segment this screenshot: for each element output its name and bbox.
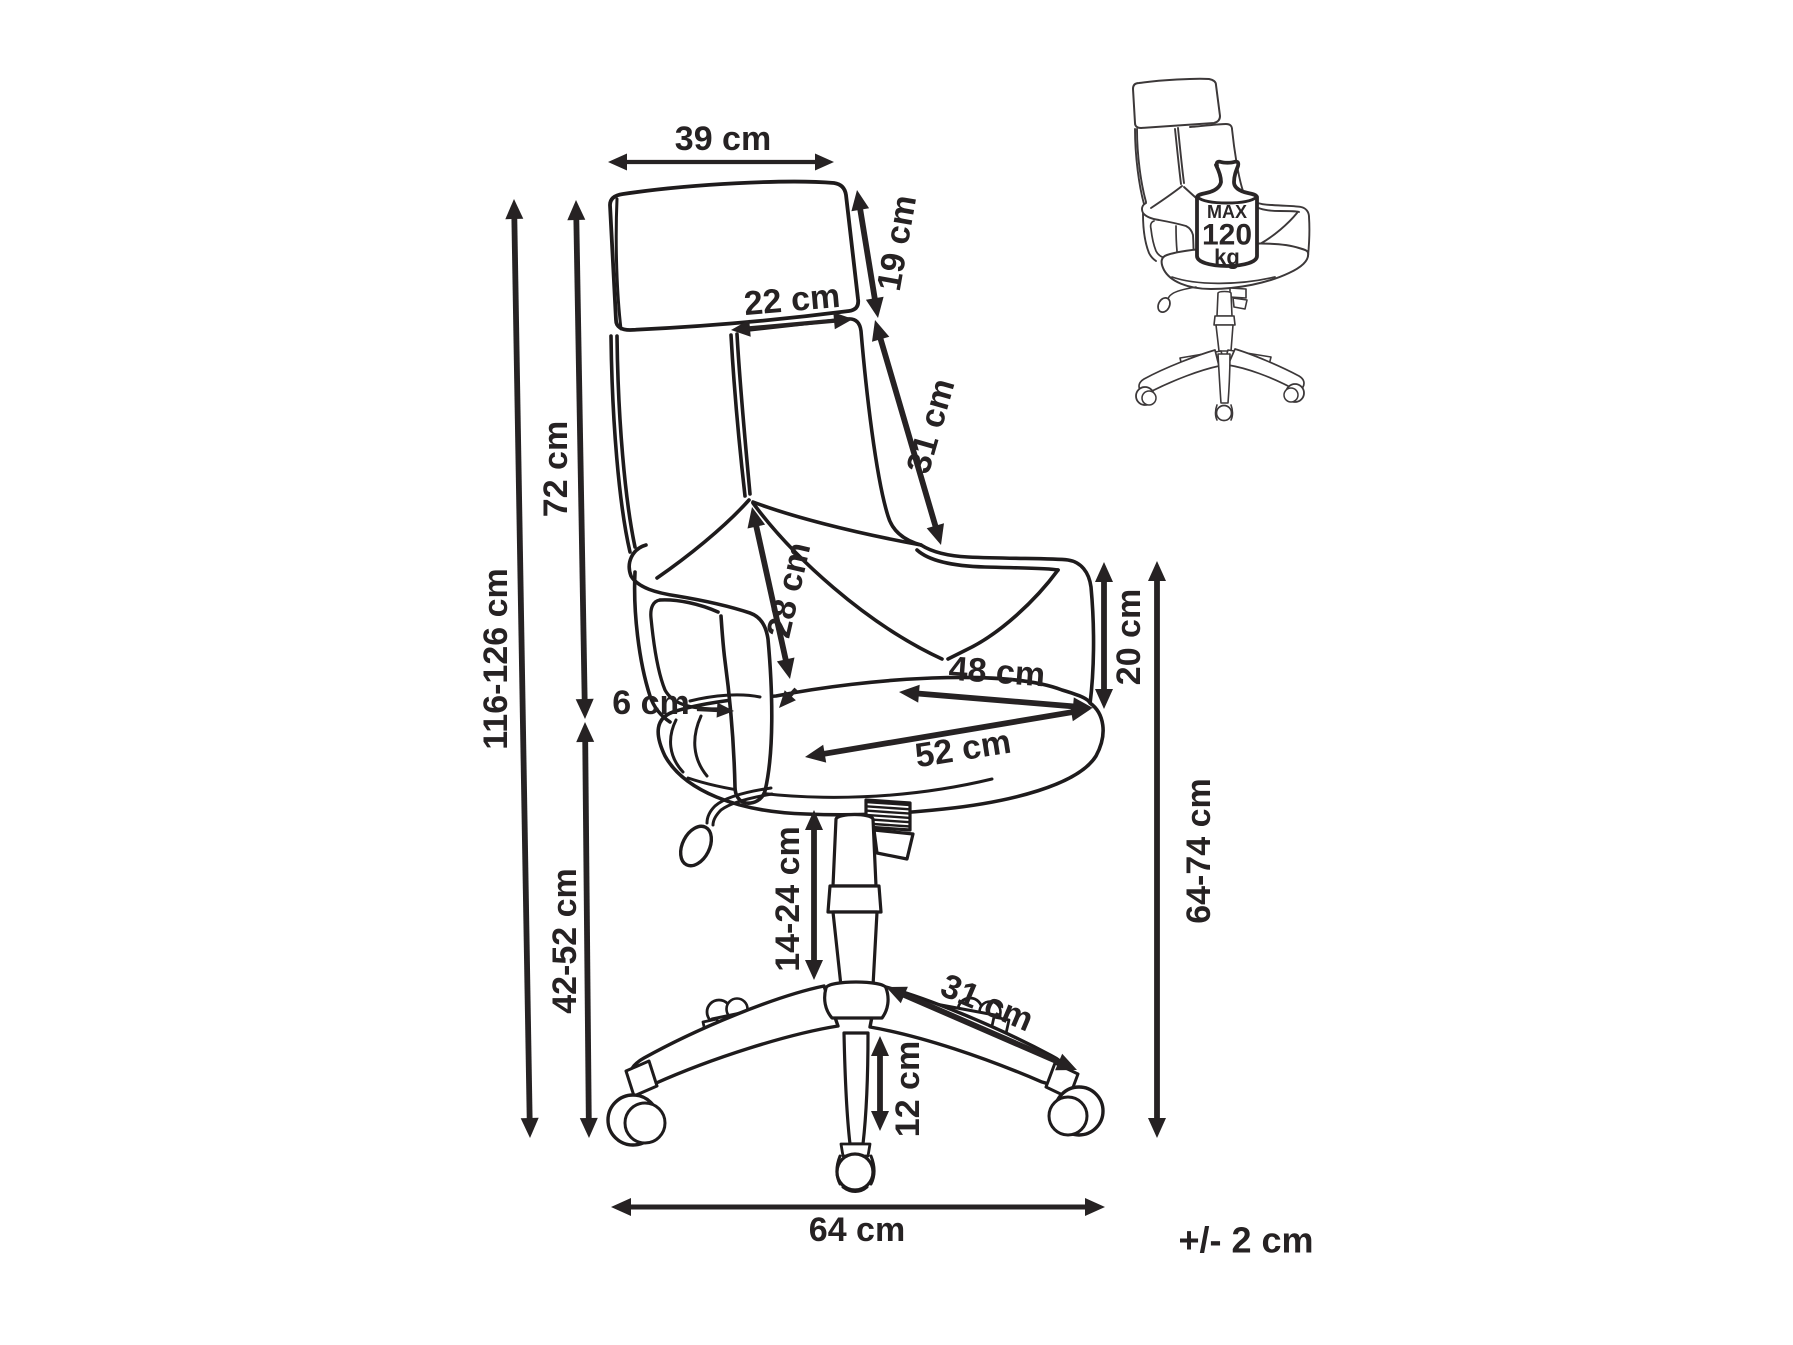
svg-text:116-126 cm: 116-126 cm (477, 568, 515, 750)
svg-text:64-74 cm: 64-74 cm (1180, 778, 1218, 924)
svg-text:42-52 cm: 42-52 cm (546, 868, 584, 1014)
svg-text:kg: kg (1214, 245, 1240, 270)
svg-text:39 cm: 39 cm (675, 120, 771, 158)
svg-text:12 cm: 12 cm (889, 1041, 927, 1137)
svg-text:14-24 cm: 14-24 cm (769, 826, 807, 972)
svg-text:20 cm: 20 cm (1110, 589, 1148, 685)
svg-text:48 cm: 48 cm (948, 650, 1047, 695)
svg-text:6 cm: 6 cm (612, 684, 690, 722)
svg-text:64 cm: 64 cm (809, 1211, 905, 1249)
svg-text:72 cm: 72 cm (537, 421, 575, 517)
svg-text:+/- 2 cm: +/- 2 cm (1178, 1220, 1313, 1261)
